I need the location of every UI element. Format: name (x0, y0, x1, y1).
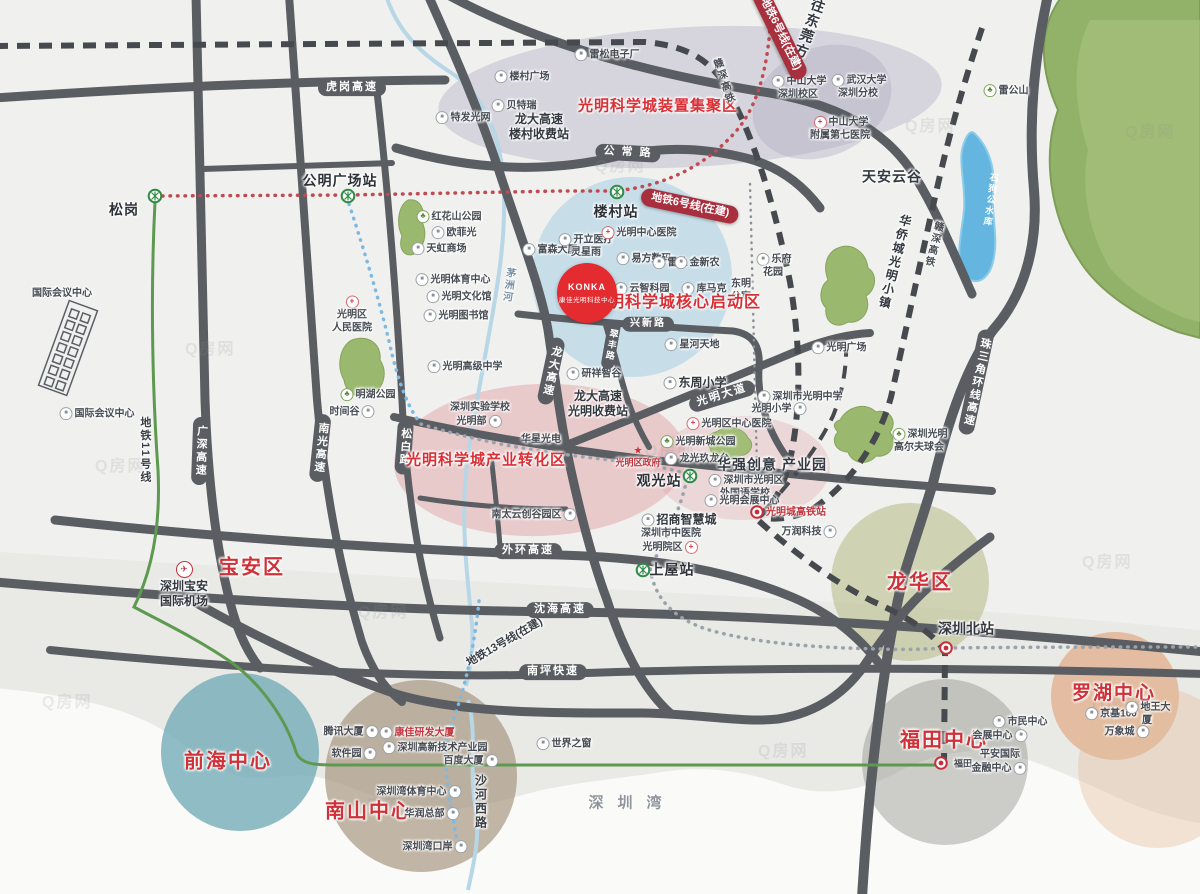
building-icon: ■ (993, 715, 1006, 728)
map-canvas: KONKA 康佳光明科技中心 松岗公明广场站虎岗高速国际会议中心■国际会议中心■… (0, 0, 1200, 894)
label-shahexi-road: 沙河西路 (473, 774, 488, 830)
label-shenzhen-north-station: 深圳北站 (938, 620, 994, 638)
label-qianhai-center-text: 前海中心 (184, 751, 272, 773)
label-jinxinnong: ■金新农 (673, 256, 720, 270)
label-longda-loucun-toll-text: 龙大高速 楼村收费站 (509, 112, 569, 141)
label-zhaoshang-smartcity: ■招商智慧城 (639, 513, 716, 528)
label-mixc-mall: 万象城■ (1105, 725, 1152, 739)
konka-project-marker: KONKA 康佳光明科技中心 (557, 263, 617, 323)
airport-plane-icon: ✈ (175, 561, 192, 578)
rail-icon-guangmingcheng (750, 505, 765, 520)
label-mixc-mall-text: 万象城 (1105, 726, 1135, 737)
watermark-8: Q房网 (42, 688, 92, 712)
label-guangming-middle-school-text: 深圳市光明中学 (773, 391, 843, 402)
label-guangming-sports-center-text: 光明体育中心 (431, 274, 491, 285)
label-guangming-golf-club: ♣深圳光明 高尔夫球会 (891, 428, 948, 454)
label-longhua-district: 龙华区 (887, 571, 953, 596)
label-tcm-hospital-guangming: 深圳市中医院 光明院区+ (641, 528, 701, 554)
road-label-nanping-expwy: 南坪快速 (519, 664, 587, 680)
label-jinxinnong-text: 金新农 (690, 257, 720, 268)
label-nantai-cloud-valley: 南太云创谷园区■ (492, 508, 579, 522)
label-guangmingcheng-hsr-station-text: 光明城高铁站 (766, 507, 826, 518)
label-loucun-plaza: ■楼村广场 (493, 70, 550, 84)
label-intl-conference-center-top-text: 国际会议中心 (32, 288, 92, 299)
label-guangming-people-hospital-text: 光明区 人民医院 (332, 310, 372, 335)
label-wuhan-univ: ■武汉大学 深圳分校 (830, 74, 887, 100)
road-label-hugang-expwy-text: 虎岗高速 (326, 81, 378, 93)
building-icon: ■ (416, 273, 429, 286)
building-icon: ■ (675, 256, 688, 269)
road-label-guangshen-expwy-text: 广深高速 (194, 425, 208, 477)
label-songgang-text: 松岗 (109, 201, 139, 217)
building-icon: ■ (1085, 707, 1098, 720)
label-huaqiang-creative-park: 华强创意 产业园 (717, 456, 827, 474)
building-icon: ■ (364, 747, 377, 760)
label-guangming-culture-hall: ■光明文化馆 (425, 290, 492, 304)
metro-icon-songgang (147, 188, 163, 204)
label-guangming-plaza: ■光明广场 (810, 341, 867, 355)
building-icon: ■ (428, 360, 441, 373)
building-icon: ■ (424, 309, 437, 322)
label-tencent-building: 腾讯大厦■ (324, 725, 381, 739)
label-baidu-building: 百度大厦■ (444, 754, 501, 768)
building-icon: ■ (436, 111, 449, 124)
watermark-0: Q房网 (185, 335, 235, 359)
building-icon: ■ (705, 494, 718, 507)
label-shenzhen-bay: 深圳湾 (588, 795, 675, 814)
label-guangming-district-hospital: +光明区中心医院 (685, 417, 772, 431)
building-icon: ■ (1126, 701, 1139, 714)
label-time-valley-text: 时间谷 (330, 406, 360, 417)
label-xinghe-tiandi: ■星河天地 (663, 338, 720, 352)
road-label-nanping-expwy-text: 南坪快速 (527, 665, 579, 677)
park-icon: ♣ (661, 435, 674, 448)
label-yanxiang-valley-text: 研祥智谷 (582, 368, 622, 379)
label-lingxingyu: 灵星雨 (571, 247, 601, 260)
label-convention-center-text: 会展中心 (973, 730, 1013, 741)
label-guangming-culture-hall-text: 光明文化馆 (442, 291, 492, 302)
label-tianhong-mall: ■天虹商场 (410, 242, 467, 256)
building-icon: ■ (1014, 761, 1027, 774)
label-huaxing-optoelectronics-text: 华星光电 (521, 434, 561, 445)
label-shahexi-road-text: 沙河西路 (474, 774, 488, 830)
building-icon: ■ (449, 785, 462, 798)
building-icon: ■ (641, 514, 654, 527)
building-icon: ■ (663, 377, 676, 390)
road-label-hugang-expwy: 虎岗高速 (318, 80, 386, 96)
label-software-park-text: 软件园 (332, 748, 362, 759)
government-star-icon: ★ (632, 445, 643, 456)
green-oct-town (821, 246, 875, 325)
label-shenzhen-north-station-text: 深圳北站 (938, 620, 994, 636)
hospital-icon: + (685, 540, 698, 553)
building-intl-conference-center (39, 301, 98, 396)
label-shenzhen-bay-text: 深圳湾 (588, 795, 675, 812)
label-intl-conference-center-text: 国际会议中心 (75, 408, 135, 419)
label-oufeiguang: ■欧菲光 (430, 226, 477, 240)
building-icon: ■ (523, 243, 536, 256)
label-guangming-government-text: 光明区政府 (615, 457, 660, 468)
label-zhongshan-univ-text: 中山大学 深圳校区 (778, 76, 827, 100)
label-guangming-newtown-park: ♣光明新城公园 (659, 435, 736, 449)
metro-icon-shangwu (635, 562, 651, 578)
label-wuhan-univ-text: 武汉大学 深圳分校 (838, 75, 887, 99)
label-guangming-primary-school-text: 光明小学 (752, 403, 792, 414)
label-diwang-building: ■地王大厦 (1121, 701, 1174, 727)
building-icon: ■ (495, 70, 508, 83)
label-metro-line11: 地铁11号线 (137, 416, 151, 484)
road-label-waihuan-expwy: 外环高速 (494, 543, 562, 559)
park-icon: ♣ (341, 388, 354, 401)
road-label-waihuan-expwy-text: 外环高速 (502, 544, 554, 556)
konka-project-name: 康佳光明科技中心 (559, 294, 615, 304)
label-huaqiang-creative-park-text: 华强创意 产业园 (717, 456, 827, 472)
road-label-gongchang-text: 公 常 路 (603, 145, 653, 160)
label-wanrun-tech-text: 万润科技 (782, 526, 822, 537)
park-icon: ♣ (417, 210, 430, 223)
label-tencent-building-text: 腾讯大厦 (324, 726, 364, 737)
road-label-guangshen-expwy: 广深高速 (191, 417, 209, 486)
rail-icon-szbei (939, 641, 954, 656)
label-guangming-newtown-park-text: 光明新城公园 (676, 436, 736, 447)
label-songgang: 松岗 (109, 201, 139, 219)
label-tefa-guangwang: ■特发光网 (434, 111, 491, 125)
rail-icon-futian (934, 756, 949, 771)
label-oufeiguang-text: 欧菲光 (447, 227, 477, 238)
label-zone-industry-transform-text: 光明科学城产业转化区 (406, 452, 566, 469)
label-tianhong-mall-text: 天虹商场 (427, 243, 467, 254)
label-baoan-district-text: 宝安区 (219, 557, 285, 579)
label-lingxingyu-text: 灵星雨 (571, 247, 601, 258)
label-nanshan-center-text: 南山中心 (325, 801, 413, 823)
label-tefa-guangwang-text: 特发光网 (451, 112, 491, 123)
label-civic-center: ■市民中心 (991, 715, 1048, 729)
watermark-10: Q房网 (758, 737, 808, 761)
label-leisong-electronics: ■雷松电子厂 (573, 48, 640, 62)
label-szbay-sports-center: 深圳湾体育中心■ (377, 785, 464, 799)
building-icon: ■ (486, 754, 499, 767)
label-tianan-cloud-valley-text: 天安云谷 (862, 168, 922, 184)
label-metro-line11-text: 地铁11号线 (139, 416, 151, 484)
label-zone-device-cluster-text: 光明科学城装置集聚区 (578, 98, 738, 115)
label-civic-center-text: 市民中心 (1008, 716, 1048, 727)
label-baoan-airport-text: 深圳宝安 国际机场 (160, 579, 208, 609)
label-guangming-sports-center: ■光明体育中心 (414, 273, 491, 287)
label-baoan-district: 宝安区 (219, 556, 285, 581)
building-icon: ■ (559, 233, 572, 246)
label-qianhai-center: 前海中心 (184, 750, 272, 775)
label-szbay-sports-center-text: 深圳湾体育中心 (377, 786, 447, 797)
label-guangming-district-hospital-text: 光明区中心医院 (702, 418, 772, 429)
building-icon: ■ (617, 252, 630, 265)
building-icon: ■ (665, 338, 678, 351)
building-icon: ■ (824, 525, 837, 538)
label-baoan-airport: ✈深圳宝安 国际机场 (160, 561, 208, 609)
label-guangming-government: ★光明区政府 (615, 445, 660, 468)
label-guangming-people-hospital: +光明区 人民医院 (332, 296, 372, 335)
label-leisong-electronics-text: 雷松电子厂 (590, 49, 640, 60)
label-wanrun-tech: 万润科技■ (782, 525, 839, 539)
park-icon: ♣ (984, 84, 997, 97)
road-label-shenhai-expwy: 沈海高速 (526, 602, 594, 618)
hospital-icon: + (602, 226, 615, 239)
label-guangming-plaza-text: 光明广场 (827, 342, 867, 353)
hospital-icon: + (814, 116, 827, 129)
building-icon: ■ (427, 290, 440, 303)
label-time-valley: 时间谷■ (330, 405, 377, 419)
watermark-3: Q房网 (1125, 118, 1175, 142)
label-zsu-7th-hospital: +中山大学 附属第七医院 (810, 116, 870, 142)
building-icon: ■ (772, 75, 785, 88)
road-label-xingxin: 兴新路 (622, 317, 674, 332)
label-szbay-port-text: 深圳湾口岸 (403, 841, 453, 852)
label-zone-industry-transform: 光明科学城产业转化区 (406, 452, 566, 471)
label-baidu-building-text: 百度大厦 (444, 755, 484, 766)
label-shangwu-station: 上屋站 (650, 561, 695, 579)
label-guangming-center-hospital: +光明中心医院 (600, 226, 677, 240)
building-icon: ■ (447, 807, 460, 820)
watermark-2: Q房网 (905, 112, 955, 136)
building-icon: ■ (564, 508, 577, 521)
label-loucun-station: 楼村站 (594, 203, 639, 221)
label-lefu-garden: ■乐府 花园 (755, 253, 792, 279)
building-icon: ■ (665, 452, 678, 465)
label-guanguang-station-text: 观光站 (637, 472, 682, 488)
label-nantai-cloud-valley-text: 南太云创谷园区 (492, 509, 562, 520)
label-guangmingcheng-hsr-station: 光明城高铁站 (766, 507, 826, 520)
label-huarun-hq: 华润总部■ (405, 807, 462, 821)
label-minghu-park-text: 明湖公园 (356, 389, 396, 400)
building-icon: ■ (1015, 729, 1028, 742)
label-beiterui: ■贝特瑞 (490, 99, 537, 113)
label-shangwu-station-text: 上屋站 (650, 561, 695, 577)
label-szbay-port: 深圳湾口岸■ (403, 840, 470, 854)
label-guangming-library-text: 光明图书馆 (439, 310, 489, 321)
label-guangming-high-school-text: 光明高级中学 (443, 361, 503, 372)
label-leigongshan-text: 雷公山 (999, 85, 1029, 96)
label-zone-device-cluster: 光明科学城装置集聚区 (578, 98, 738, 117)
label-yanxiang-valley: ■研祥智谷 (565, 367, 622, 381)
label-beiterui-text: 贝特瑞 (507, 100, 537, 111)
label-hightech-park-text: 深圳高新技术产业园 (398, 742, 488, 753)
label-gongming-square-station-text: 公明广场站 (303, 172, 378, 188)
label-honghuashan-park: ♣红花山公园 (415, 210, 482, 224)
label-pingan-finance-center: 平安国际 金融中心■ (972, 749, 1029, 775)
label-minghu-park: ♣明湖公园 (339, 388, 396, 402)
label-konka-rd-building: ■康佳研发大厦 (378, 726, 455, 740)
label-shenzhen-experimental-school: 深圳实验学校 光明部■ (450, 402, 510, 428)
label-loucun-station-text: 楼村站 (594, 203, 639, 219)
label-intl-conference-center-top: 国际会议中心 (32, 288, 92, 301)
label-longda-guangming-toll-text: 龙大高速 光明收费站 (568, 389, 628, 418)
label-guanguang-station: 观光站 (637, 472, 682, 490)
label-zhaoshang-smartcity-text: 招商智慧城 (656, 513, 716, 527)
hospital-icon: + (687, 417, 700, 430)
building-icon: ■ (567, 367, 580, 380)
building-icon: ■ (432, 226, 445, 239)
building-icon: ■ (60, 407, 73, 420)
building-icon: ■ (575, 48, 588, 61)
label-window-of-world-text: 世界之窗 (552, 738, 592, 749)
label-convention-center: 会展中心■ (973, 729, 1030, 743)
label-huaxing-optoelectronics: 华星光电 (521, 434, 561, 447)
building-icon: ■ (709, 474, 722, 487)
label-futian-station-text: 福田 (954, 758, 972, 768)
label-diwang-building-text: 地王大厦 (1141, 702, 1171, 726)
label-guangming-center-hospital-text: 光明中心医院 (617, 227, 677, 238)
label-futian-station: 福田 (954, 758, 972, 769)
building-icon: ■ (757, 253, 770, 266)
watermark-7: Q房网 (358, 598, 408, 622)
label-software-park: 软件园■ (332, 747, 379, 761)
building-icon: ■ (492, 99, 505, 112)
label-huarun-hq-text: 华润总部 (405, 808, 445, 819)
hospital-icon: + (346, 296, 359, 309)
building-icon: ■ (653, 256, 666, 269)
park-icon: ♣ (893, 428, 906, 441)
label-loucun-plaza-text: 楼村广场 (510, 71, 550, 82)
road-label-xingxin-text: 兴新路 (630, 318, 666, 329)
building-icon: ■ (380, 726, 393, 739)
label-xinghe-tiandi-text: 星河天地 (680, 339, 720, 350)
road-gongming-grid (202, 163, 392, 169)
building-icon: ■ (1137, 725, 1150, 738)
label-guangming-high-school: ■光明高级中学 (426, 360, 503, 374)
building-icon: ■ (832, 74, 845, 87)
label-guangming-primary-school: 光明小学■ (752, 402, 809, 416)
building-icon: ■ (455, 840, 468, 853)
building-icon: ■ (794, 402, 807, 415)
label-longhua-district-text: 龙华区 (887, 572, 953, 594)
metro-icon-guanguang (682, 468, 698, 484)
watermark-6: Q房网 (1082, 548, 1132, 572)
building-icon: ■ (537, 737, 550, 750)
label-leigongshan: ♣雷公山 (982, 84, 1029, 98)
label-window-of-world: ■世界之窗 (535, 737, 592, 751)
metro-icon-gongming (340, 188, 356, 204)
label-guangming-library: ■光明图书馆 (422, 309, 489, 323)
road-label-shenhai-expwy-text: 沈海高速 (534, 603, 586, 615)
building-icon: ■ (812, 341, 825, 354)
label-nanshan-center: 南山中心 (325, 800, 413, 825)
building-icon: ■ (412, 242, 425, 255)
label-honghuashan-park-text: 红花山公园 (432, 211, 482, 222)
label-hightech-park: ■深圳高新技术产业园 (381, 741, 488, 755)
label-tianan-cloud-valley: 天安云谷 (862, 168, 922, 186)
metro-icon-loucun (609, 184, 625, 200)
building-icon: ■ (362, 405, 375, 418)
label-konka-rd-building-text: 康佳研发大厦 (395, 727, 455, 738)
road-label-gongchang: 公 常 路 (595, 143, 661, 162)
label-intl-conference-center: ■国际会议中心 (58, 407, 135, 421)
building-icon: ■ (383, 741, 396, 754)
label-longda-loucun-toll: 龙大高速 楼村收费站 (509, 112, 569, 142)
konka-logo: KONKA (568, 282, 606, 292)
building-icon: ■ (489, 414, 502, 427)
label-longda-guangming-toll: 龙大高速 光明收费站 (568, 389, 628, 419)
